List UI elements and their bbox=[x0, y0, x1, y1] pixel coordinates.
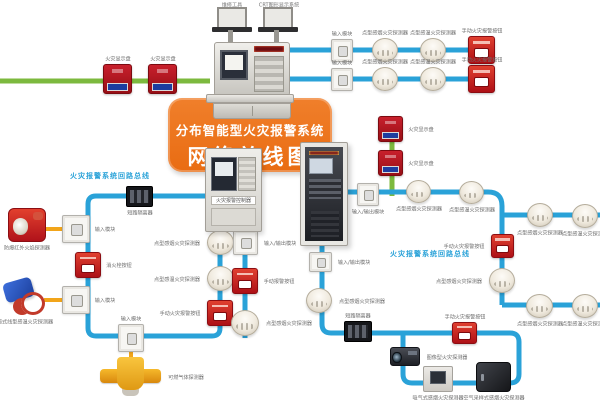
device-label: 图像型火灾探测器 bbox=[427, 353, 468, 361]
camera-detector: 图像型火灾探测器 bbox=[390, 347, 420, 366]
panel-screen bbox=[211, 157, 237, 191]
panel-name-strip: 火灾报警控制器 bbox=[211, 196, 256, 205]
device-label: 防爆红外火焰探测器 bbox=[4, 244, 50, 252]
laptop-screen bbox=[263, 7, 293, 29]
module: 输入/输出模块 bbox=[357, 183, 379, 206]
bus-label: 火灾报警系统回路总线 bbox=[390, 249, 470, 259]
device-label: 点型感烟火灾探测器 bbox=[266, 319, 312, 327]
device-label: 输入/输出模块 bbox=[338, 258, 370, 266]
module: 输入模块 bbox=[62, 215, 90, 243]
cabinet-led bbox=[309, 151, 339, 155]
detector: 点型感温火灾探测器 bbox=[459, 181, 484, 204]
device-label: 点型感烟火灾探测器 bbox=[154, 239, 200, 247]
fire-alarm-control-panel: 火灾报警控制器 bbox=[205, 148, 262, 232]
detector: 点型感烟火灾探测器 bbox=[527, 203, 553, 227]
device-label: 火灾显示盘 bbox=[150, 55, 176, 63]
device-label: 空气采样式感烟火灾探测器 bbox=[463, 394, 524, 400]
cabinet-screen bbox=[309, 158, 333, 174]
module: 输入模块 bbox=[331, 68, 353, 91]
device-label: 点型感温火灾探测器 bbox=[449, 206, 495, 214]
module: 输入/输出模块 bbox=[233, 230, 258, 255]
module: 输入模块 bbox=[62, 286, 90, 314]
floor-standing-controller bbox=[300, 142, 348, 246]
sampling-unit: 空气采样式感烟火灾探测器 bbox=[476, 362, 511, 392]
device-label: 手动报警按钮 bbox=[264, 277, 295, 285]
display-panel: 火灾显示盘 bbox=[148, 64, 177, 94]
display-panel: 火灾显示盘 bbox=[378, 150, 403, 176]
device-label: 输入模块 bbox=[121, 315, 141, 323]
device-label: 输入模块 bbox=[332, 59, 352, 67]
device-label: 点型感烟火灾探测器 bbox=[436, 277, 482, 285]
device-label: 点型感烟火灾探测器 bbox=[339, 297, 385, 305]
gas-detector: 可燃气体探测器 bbox=[100, 357, 161, 397]
cable-detector: 缆式线型感温火灾探测器 bbox=[4, 277, 46, 315]
device-label: 短路隔离器 bbox=[127, 209, 153, 217]
device-label: 输入模块 bbox=[95, 225, 115, 233]
module: 输入模块 bbox=[118, 324, 144, 352]
device-label: 点型感烟火灾探测器 bbox=[517, 320, 563, 328]
detector: 点型感烟火灾探测器 bbox=[306, 288, 332, 313]
console-cabinet-base bbox=[213, 103, 291, 119]
detector: 点型感温火灾探测器 bbox=[572, 204, 598, 228]
flame-detector: 防爆红外火焰探测器 bbox=[8, 208, 46, 242]
device-label: 输入模块 bbox=[332, 30, 352, 38]
device-label: 火灾显示盘 bbox=[408, 159, 434, 167]
console-screen bbox=[220, 50, 248, 80]
device-label: 输入/输出模块 bbox=[264, 239, 296, 247]
device-label: 点型感烟火灾探测器 bbox=[362, 58, 408, 66]
device-label: 吸气式感烟火灾探测器 bbox=[412, 394, 463, 400]
callpoint: 手动火灾报警按钮 bbox=[452, 322, 477, 344]
device-label: 点型感温火灾探测器 bbox=[562, 230, 600, 238]
device-label: 火灾显示盘 bbox=[105, 55, 131, 63]
device-label: 短路隔离器 bbox=[345, 312, 371, 320]
cabinet-keypad bbox=[309, 179, 341, 199]
callpoint: 手动火灾报警按钮 bbox=[491, 234, 514, 258]
laptop-screen bbox=[217, 7, 247, 29]
panel-lower-door bbox=[211, 208, 256, 226]
device-label: 点型感烟火灾探测器 bbox=[517, 229, 563, 237]
detector: 点型感烟火灾探测器 bbox=[372, 67, 398, 91]
callpoint: 手动火灾报警按钮 bbox=[468, 65, 495, 93]
device-label: 点型感温火灾探测器 bbox=[410, 29, 456, 37]
detector: 点型感烟火灾探测器 bbox=[526, 294, 553, 318]
device-label: 缆式线型感温火灾探测器 bbox=[0, 318, 53, 326]
cabinet-vent bbox=[311, 211, 339, 237]
device-label: 点型感烟火灾探测器 bbox=[396, 205, 442, 213]
device-label: 手动火灾报警按钮 bbox=[160, 309, 201, 317]
device-label: 点型感烟火灾探测器 bbox=[362, 29, 408, 37]
detector: 点型感烟火灾探测器 bbox=[489, 268, 515, 293]
network-diagram: 分布智能型火灾报警系统 网络总线图 火灾显示盘火灾显示盘输入模块点型感烟火灾探测… bbox=[0, 0, 600, 400]
detector: 点型感温火灾探测器 bbox=[207, 266, 234, 291]
detector: 点型感烟火灾探测器 bbox=[207, 230, 234, 255]
laptop bbox=[258, 7, 298, 32]
module: 输入/输出模块 bbox=[309, 252, 332, 272]
device-label: 火灾显示盘 bbox=[408, 125, 434, 133]
console-led-display bbox=[254, 46, 284, 52]
device-label: 点型感温火灾探测器 bbox=[410, 58, 456, 66]
device-label: 点型感温火灾探测器 bbox=[154, 275, 200, 283]
display-panel: 火灾显示盘 bbox=[378, 116, 403, 142]
device-label: 手动火灾报警按钮 bbox=[461, 56, 502, 64]
isolator: 短路隔离器 bbox=[344, 321, 372, 342]
console-desk bbox=[206, 94, 294, 103]
device-label: 输入模块 bbox=[95, 296, 115, 304]
device-label: 手动火灾报警按钮 bbox=[444, 313, 485, 321]
display-panel: 火灾显示盘 bbox=[103, 64, 132, 94]
device-label: 可燃气体探测器 bbox=[168, 373, 204, 381]
callpoint: 消火栓按钮 bbox=[75, 252, 101, 278]
panel-keypad bbox=[238, 157, 256, 191]
device-label: 输入/输出模块 bbox=[352, 208, 384, 216]
callpoint: 手动报警按钮 bbox=[232, 268, 258, 294]
device-label: 消火栓按钮 bbox=[106, 261, 132, 269]
aspirating-panel: 吸气式感烟火灾探测器 bbox=[423, 366, 453, 392]
laptop bbox=[212, 7, 252, 32]
detector: 点型感温火灾探测器 bbox=[572, 294, 598, 318]
device-label: 手动火灾报警按钮 bbox=[461, 27, 502, 35]
detector: 点型感温火灾探测器 bbox=[420, 67, 446, 91]
detector: 点型感烟火灾探测器 bbox=[406, 180, 431, 203]
isolator: 短路隔离器 bbox=[126, 186, 153, 207]
callpoint: 手动火灾报警按钮 bbox=[207, 300, 233, 326]
bus-label: 火灾报警系统回路总线 bbox=[70, 171, 150, 181]
detector: 点型感烟火灾探测器 bbox=[231, 310, 259, 336]
device-label: 点型感温火灾探测器 bbox=[562, 320, 600, 328]
console-keypad bbox=[254, 56, 284, 92]
